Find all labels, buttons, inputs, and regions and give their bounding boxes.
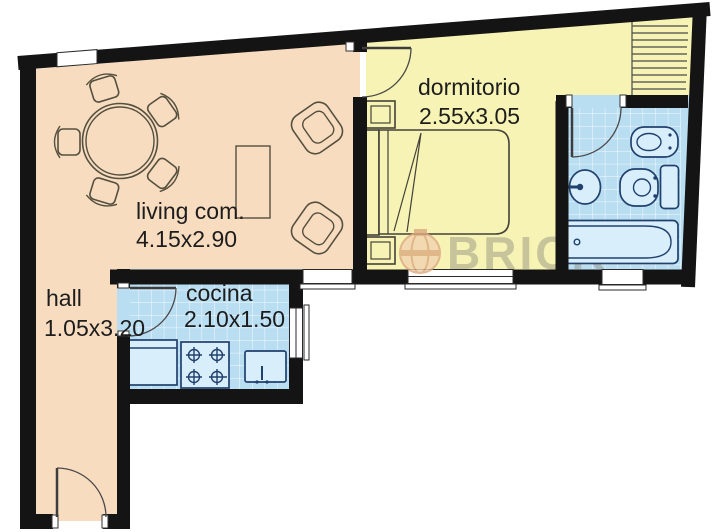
dormitorio-dims: 2.55x3.05	[419, 103, 520, 129]
kitchen-window	[290, 305, 310, 360]
cocina-label: cocina	[186, 280, 253, 306]
living-bottom-window	[300, 270, 355, 290]
floor-plan-page: BRICK	[0, 0, 720, 532]
kitchen-door-jamb	[118, 283, 129, 288]
bathtub	[557, 221, 678, 264]
bedroom-door-jamb	[346, 42, 354, 51]
stove	[181, 342, 229, 388]
bathroom-cabinet	[661, 166, 679, 209]
cocina-dims: 2.10x1.50	[184, 306, 285, 332]
bed	[366, 130, 509, 235]
living-label: living com.	[136, 198, 245, 224]
hall-dims: 1.05x3.20	[44, 315, 145, 341]
bathroom-door-jamb	[620, 95, 626, 107]
dining-table	[83, 104, 158, 179]
bathroom-window	[599, 270, 646, 291]
floor-plan-drawing: BRICK	[0, 0, 720, 532]
bidet	[631, 127, 678, 157]
bathroom-door-jamb	[566, 95, 572, 107]
dormitorio-label: dormitorio	[418, 74, 520, 100]
fridge	[128, 340, 177, 385]
nightstand	[366, 237, 395, 264]
living-dims: 4.15x2.90	[136, 226, 237, 252]
entrance-door-jamb	[102, 515, 108, 528]
kitchen-sink	[245, 351, 286, 384]
toilet	[620, 169, 658, 206]
hall-label: hall	[46, 285, 82, 311]
dining-chair	[55, 126, 81, 158]
nightstand	[366, 101, 395, 128]
living-top-window	[57, 50, 97, 67]
